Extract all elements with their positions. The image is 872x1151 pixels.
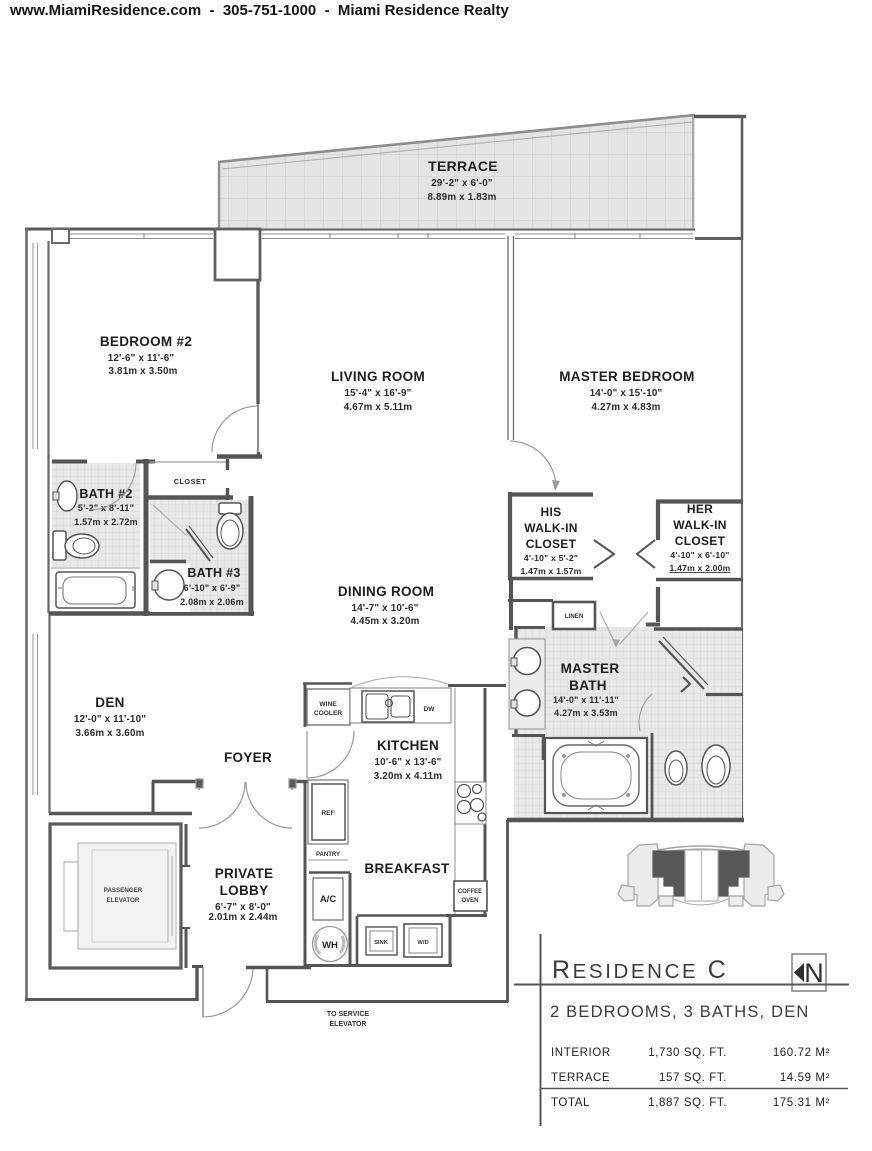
svg-text:CLOSET: CLOSET: [675, 534, 726, 548]
svg-text:CLOSET: CLOSET: [174, 477, 207, 486]
svg-text:PASSENGER: PASSENGER: [104, 887, 143, 894]
svg-text:BREAKFAST: BREAKFAST: [364, 861, 450, 876]
svg-text:COOLER: COOLER: [314, 710, 342, 717]
svg-text:WINE: WINE: [319, 701, 337, 708]
svg-text:14'-0" x 11'-11": 14'-0" x 11'-11": [553, 695, 619, 705]
svg-text:160.72 M²: 160.72 M²: [773, 1047, 830, 1059]
svg-text:3.66m x 3.60m: 3.66m x 3.60m: [75, 728, 144, 739]
svg-text:KITCHEN: KITCHEN: [377, 738, 439, 753]
svg-text:TERRACE: TERRACE: [551, 1072, 610, 1084]
svg-text:1,730 SQ. FT.: 1,730 SQ. FT.: [648, 1047, 727, 1059]
svg-text:COFFEE: COFFEE: [458, 889, 482, 895]
svg-text:HIS: HIS: [541, 505, 562, 519]
svg-text:1,887 SQ. FT.: 1,887 SQ. FT.: [648, 1097, 727, 1109]
svg-text:15'-4" x 16'-9": 15'-4" x 16'-9": [344, 388, 411, 399]
svg-text:1.47m x 2.00m: 1.47m x 2.00m: [670, 563, 731, 573]
svg-text:HER: HER: [687, 502, 713, 516]
svg-text:ELEVATOR: ELEVATOR: [330, 1021, 367, 1028]
svg-text:WH: WH: [322, 940, 338, 951]
svg-text:RESIDENCE C: RESIDENCE C: [552, 956, 728, 984]
svg-text:4.27m x 3.53m: 4.27m x 3.53m: [554, 708, 618, 718]
svg-text:DEN: DEN: [95, 695, 124, 710]
svg-text:A/C: A/C: [320, 894, 337, 905]
svg-text:6'-10" x 6'-9": 6'-10" x 6'-9": [184, 583, 241, 593]
svg-text:2.08m x 2.06m: 2.08m x 2.06m: [180, 597, 244, 607]
svg-text:3.20m x 4.11m: 3.20m x 4.11m: [374, 771, 443, 782]
svg-text:INTERIOR: INTERIOR: [551, 1047, 611, 1059]
svg-text:WALK-IN: WALK-IN: [673, 518, 726, 532]
svg-text:BEDROOM #2: BEDROOM #2: [100, 334, 192, 349]
svg-text:www.MiamiResidence.com - 305: www.MiamiResidence.com - 305-751-1000 - …: [9, 2, 509, 19]
svg-text:14'-0" x 15'-10": 14'-0" x 15'-10": [590, 388, 663, 399]
svg-text:MASTER: MASTER: [561, 661, 620, 676]
svg-text:TOTAL: TOTAL: [551, 1097, 590, 1109]
svg-text:10'-6" x 13'-6": 10'-6" x 13'-6": [374, 757, 441, 768]
svg-text:4'-10" x 5'-2": 4'-10" x 5'-2": [524, 553, 578, 563]
svg-text:REF: REF: [321, 810, 334, 817]
svg-text:PRIVATE: PRIVATE: [215, 866, 274, 881]
svg-text:4.67m x 5.11m: 4.67m x 5.11m: [344, 402, 413, 413]
svg-text:BATH: BATH: [569, 678, 607, 693]
svg-text:FOYER: FOYER: [224, 750, 272, 765]
svg-text:TO SERVICE: TO SERVICE: [327, 1011, 369, 1018]
svg-text:29'-2" x 6'-0": 29'-2" x 6'-0": [431, 178, 492, 189]
svg-text:175.31 M²: 175.31 M²: [773, 1097, 830, 1109]
svg-text:PANTRY: PANTRY: [316, 852, 340, 858]
svg-text:LIVING ROOM: LIVING ROOM: [331, 369, 425, 384]
svg-text:BATH #3: BATH #3: [187, 566, 240, 580]
svg-text:14.59 M²: 14.59 M²: [780, 1072, 830, 1084]
svg-text:LOBBY: LOBBY: [220, 883, 269, 898]
svg-text:12'-0" x 11'-10": 12'-0" x 11'-10": [74, 714, 146, 725]
svg-text:SINK: SINK: [374, 940, 389, 946]
svg-text:1.57m x 2.72m: 1.57m x 2.72m: [74, 517, 138, 527]
svg-text:W/D: W/D: [417, 940, 428, 946]
svg-text:4.27m x 4.83m: 4.27m x 4.83m: [591, 402, 660, 413]
svg-text:LINEN: LINEN: [565, 613, 584, 620]
svg-text:157 SQ. FT.: 157 SQ. FT.: [659, 1072, 727, 1084]
svg-text:CLOSET: CLOSET: [526, 537, 577, 551]
svg-text:ELEVATOR: ELEVATOR: [107, 897, 140, 904]
svg-text:12'-6" x 11'-6": 12'-6" x 11'-6": [108, 353, 175, 364]
svg-text:2 BEDROOMS, 3 BATHS, DEN: 2 BEDROOMS, 3 BATHS, DEN: [550, 1003, 810, 1021]
svg-text:OVEN: OVEN: [461, 898, 478, 904]
svg-text:2.01m x 2.44m: 2.01m x 2.44m: [208, 912, 277, 923]
svg-text:5'-2" x 8'-11": 5'-2" x 8'-11": [78, 503, 134, 513]
svg-text:WALK-IN: WALK-IN: [524, 521, 577, 535]
svg-text:MASTER BEDROOM: MASTER BEDROOM: [559, 369, 694, 384]
svg-text:1.47m x 1.57m: 1.47m x 1.57m: [521, 566, 582, 576]
svg-text:3.81m x 3.50m: 3.81m x 3.50m: [108, 366, 177, 377]
svg-text:DINING ROOM: DINING ROOM: [338, 584, 434, 599]
svg-text:TERRACE: TERRACE: [428, 158, 498, 174]
svg-text:8.89m x 1.83m: 8.89m x 1.83m: [427, 192, 496, 203]
svg-text:4'-10" x 6'-10": 4'-10" x 6'-10": [670, 550, 729, 560]
svg-text:14'-7" x 10'-6": 14'-7" x 10'-6": [351, 603, 418, 614]
svg-text:DW: DW: [424, 706, 436, 713]
svg-text:4.45m x 3.20m: 4.45m x 3.20m: [350, 616, 419, 627]
